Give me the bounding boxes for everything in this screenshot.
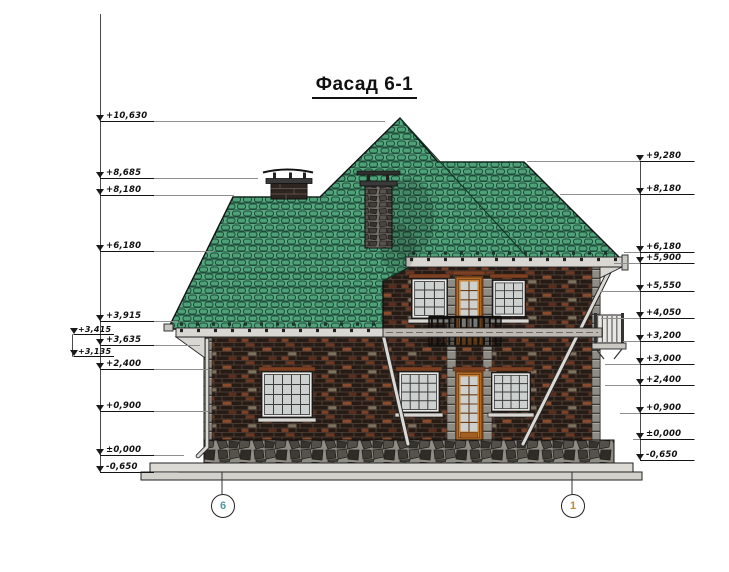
mark-underline <box>640 460 694 461</box>
elevation-marks-layer: +10,630 +8,685 +8,180 +6,180 +3,915 +3,4 <box>0 0 729 572</box>
elevation-value: +5,550 <box>646 281 681 291</box>
elevation-value: +3,000 <box>646 354 681 364</box>
elevation-value: +8,180 <box>646 184 681 194</box>
mark-underline <box>640 364 694 365</box>
mark-underline <box>100 411 154 412</box>
axis-bubble: 1 <box>561 494 585 518</box>
elevation-tick-icon <box>96 339 104 345</box>
mark-underline <box>100 121 154 122</box>
elevation-value: +6,180 <box>106 241 141 251</box>
elevation-value: +3,635 <box>106 335 141 345</box>
elevation-tick-icon <box>96 449 104 455</box>
mark-underline <box>74 356 114 357</box>
elevation-tick-icon <box>636 155 644 161</box>
elevation-value: +6,180 <box>646 242 681 252</box>
mark-underline <box>640 194 694 195</box>
mark-underline <box>640 291 694 292</box>
mark-underline <box>100 321 154 322</box>
mark-underline <box>640 161 694 162</box>
mark-underline <box>100 455 154 456</box>
elevation-value: +3,915 <box>106 311 141 321</box>
elevation-tick-icon <box>636 379 644 385</box>
elevation-tick-icon <box>96 363 104 369</box>
mark-underline <box>100 251 154 252</box>
elevation-value: +3,415 <box>78 325 111 334</box>
mark-underline <box>640 341 694 342</box>
mark-underline <box>640 318 694 319</box>
elevation-tick-icon <box>96 172 104 178</box>
axis-number: 6 <box>220 500 226 512</box>
elevation-value: +0,900 <box>646 403 681 413</box>
mark-underline <box>100 195 154 196</box>
elevation-tick-icon <box>636 285 644 291</box>
elevation-value: ±0,000 <box>106 445 141 455</box>
elevation-tick-icon <box>636 407 644 413</box>
mark-underline <box>640 439 694 440</box>
elevation-value: -0,650 <box>646 450 678 460</box>
elevation-value: ±0,000 <box>646 429 681 439</box>
elevation-value: +3,135 <box>78 347 111 356</box>
elevation-value: +3,200 <box>646 331 681 341</box>
elevation-tick-icon <box>70 328 78 334</box>
mark-underline <box>100 472 154 473</box>
facade-drawing-sheet: Фасад 6-1 +10,630 +8,685 +8,180 +6,180 <box>0 0 729 572</box>
elevation-tick-icon <box>96 405 104 411</box>
elevation-tick-icon <box>96 315 104 321</box>
mark-underline <box>640 413 694 414</box>
elevation-tick-icon <box>70 350 78 356</box>
mark-underline <box>640 385 694 386</box>
elevation-tick-icon <box>636 246 644 252</box>
elevation-value: +5,900 <box>646 253 681 263</box>
elevation-value: +10,630 <box>106 111 147 121</box>
elevation-value: +0,900 <box>106 401 141 411</box>
mark-underline <box>100 178 154 179</box>
elevation-value: -0,650 <box>106 462 138 472</box>
mark-underline <box>640 263 694 264</box>
elevation-value: +2,400 <box>106 359 141 369</box>
elevation-tick-icon <box>636 335 644 341</box>
elevation-tick-icon <box>96 189 104 195</box>
elevation-tick-icon <box>636 257 644 263</box>
elevation-tick-icon <box>636 433 644 439</box>
elevation-tick-icon <box>636 188 644 194</box>
elevation-value: +4,050 <box>646 308 681 318</box>
elevation-value: +9,280 <box>646 151 681 161</box>
elevation-tick-icon <box>636 454 644 460</box>
axis-bubble: 6 <box>211 494 235 518</box>
axis-number: 1 <box>570 500 576 512</box>
elevation-tick-icon <box>636 312 644 318</box>
elevation-tick-icon <box>636 358 644 364</box>
elevation-value: +8,180 <box>106 185 141 195</box>
mark-underline <box>100 369 154 370</box>
elevation-tick-icon <box>96 245 104 251</box>
elevation-tick-icon <box>96 115 104 121</box>
elevation-value: +8,685 <box>106 168 141 178</box>
elevation-value: +2,400 <box>646 375 681 385</box>
elevation-tick-icon <box>96 466 104 472</box>
